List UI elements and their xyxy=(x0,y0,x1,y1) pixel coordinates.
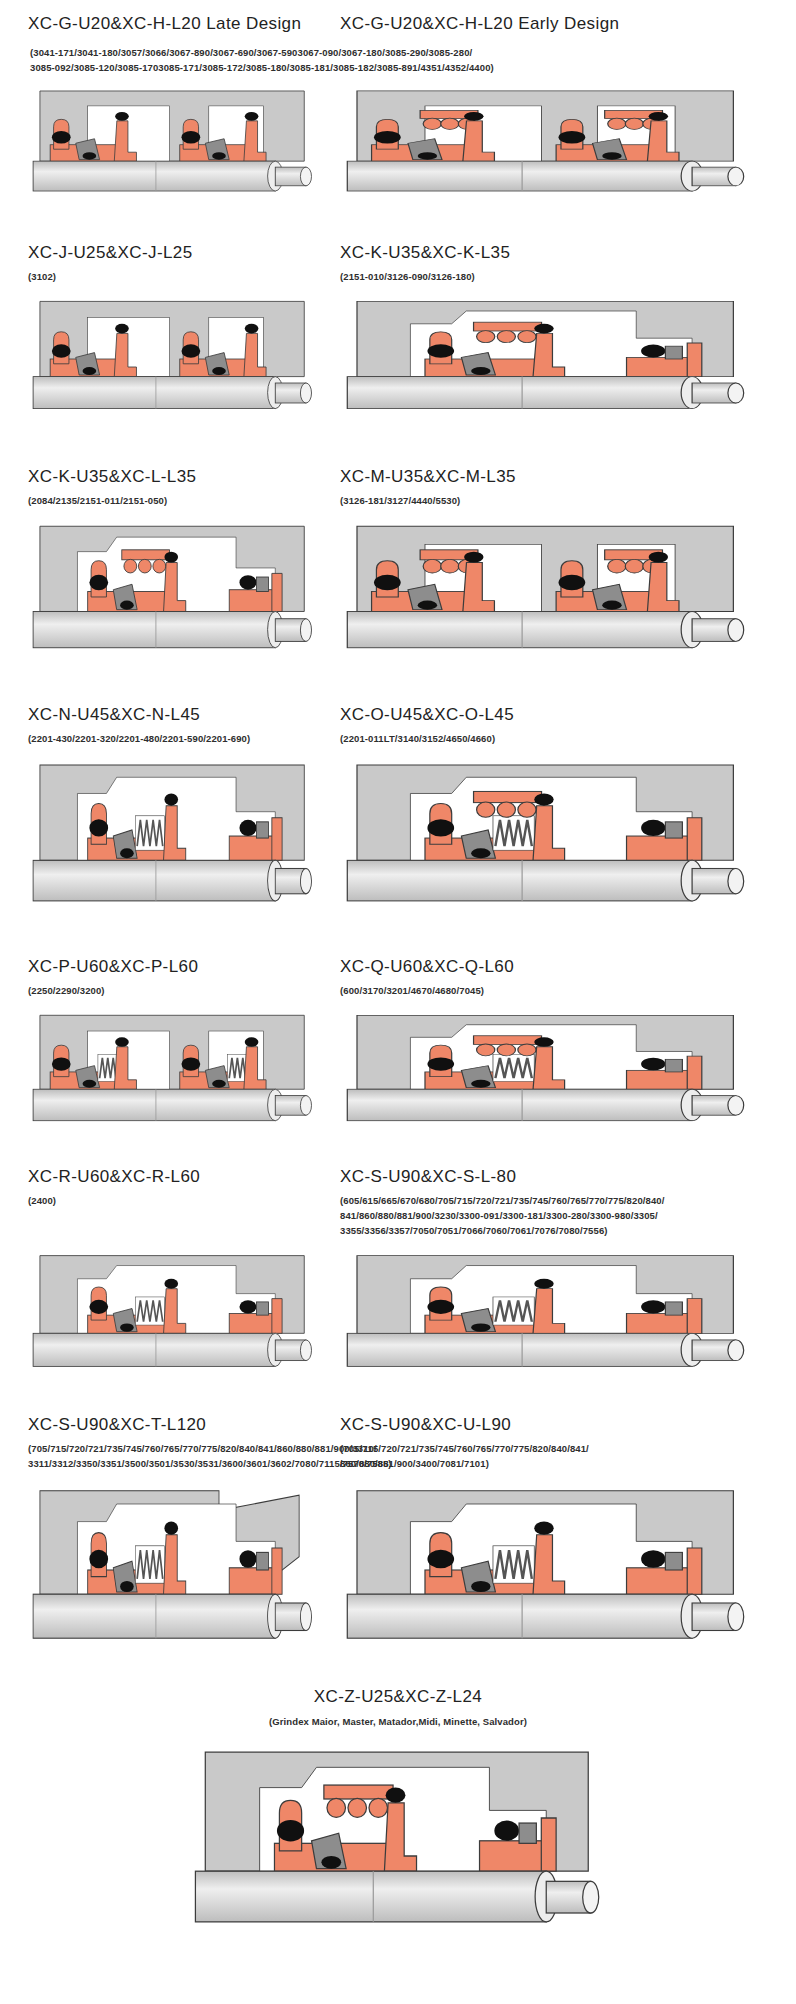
model-codes-line: (2201-011LT/3140/3152/4650/4660) xyxy=(340,732,770,747)
section-title-xc-t: XC-S-U90&XC-T-L120 xyxy=(28,1415,330,1435)
seal-diagram-xc-p xyxy=(28,1009,318,1127)
section-xc-q: XC-Q-U60&XC-Q-L60 (600/3170/3201/4670/46… xyxy=(338,957,796,1127)
seal-diagram-xc-u xyxy=(340,1482,753,1647)
section-title-xc-m: XC-M-U35&XC-M-L35 xyxy=(340,467,770,487)
section-xc-n: XC-N-U45&XC-N-L45 (2201-430/2201-320/220… xyxy=(0,705,338,909)
model-codes-xc-n: (2201-430/2201-320/2201-480/2201-590/220… xyxy=(28,732,330,747)
section-xc-m: XC-M-U35&XC-M-L35 (3126-181/3127/4440/55… xyxy=(338,467,796,655)
seal-diagram-xc-g-early xyxy=(340,85,753,197)
row-kl-m: XC-K-U35&XC-L-L35 (2084/2135/2151-011/21… xyxy=(0,467,796,655)
model-codes-line: (2151-010/3126-090/3126-180) xyxy=(340,270,770,285)
section-title-xc-s: XC-S-U90&XC-S-L-80 xyxy=(340,1167,770,1187)
seal-diagram-xc-s xyxy=(340,1249,753,1373)
model-codes-xc-j: (3102) xyxy=(28,270,330,285)
section-title-xc-p: XC-P-U60&XC-P-L60 xyxy=(28,957,330,977)
seal-diagram-xc-n xyxy=(28,757,318,909)
catalog-page: XC-G-U20&XC-H-L20 Late Design XC-G-U20&X… xyxy=(0,0,796,1956)
model-codes-xc-s: (605/615/665/670/680/705/715/720/721/735… xyxy=(340,1194,770,1239)
model-codes-line: (3041-171/3041-180/3057/3066/3067-890/30… xyxy=(30,46,796,61)
model-codes-line: (2084/2135/2151-011/2151-050) xyxy=(28,494,330,509)
model-codes-line: (705/715/720/721/735/745/760/765/770/775… xyxy=(340,1442,770,1457)
model-codes-line: (Grindex Maior, Master, Matador,Midi, Mi… xyxy=(163,1715,633,1730)
section-title-xc-q: XC-Q-U60&XC-Q-L60 xyxy=(340,957,770,977)
section-xc-g-early-title-cell: XC-G-U20&XC-H-L20 Early Design xyxy=(338,14,796,34)
seal-diagram-xc-g-late xyxy=(28,85,318,197)
row-g-diagrams xyxy=(0,75,796,197)
model-codes-xc-q: (600/3170/3201/4670/4680/7045) xyxy=(340,984,770,999)
model-codes-line: 841/860/880/881/900/3230/3300-091/3300-1… xyxy=(340,1209,770,1224)
model-codes-line: (605/615/665/670/680/705/715/720/721/735… xyxy=(340,1194,770,1209)
section-xc-k: XC-K-U35&XC-K-L35 (2151-010/3126-090/312… xyxy=(338,243,796,415)
section-title-xc-r: XC-R-U60&XC-R-L60 xyxy=(28,1167,330,1187)
seal-diagram-xc-kl xyxy=(28,519,318,655)
seal-diagram-xc-o xyxy=(340,757,753,909)
section-title-xc-n: XC-N-U45&XC-N-L45 xyxy=(28,705,330,725)
section-title-xc-z: XC-Z-U25&XC-Z-L24 xyxy=(163,1687,633,1707)
section-xc-g-late-title-cell: XC-G-U20&XC-H-L20 Late Design xyxy=(0,14,338,34)
seal-diagram-xc-m xyxy=(340,519,753,655)
section-title-xc-o: XC-O-U45&XC-O-L45 xyxy=(340,705,770,725)
section-title-xc-j: XC-J-U25&XC-J-L25 xyxy=(28,243,330,263)
shared-model-codes: (3041-171/3041-180/3057/3066/3067-890/30… xyxy=(0,46,796,75)
model-codes-line: (2250/2290/3200) xyxy=(28,984,330,999)
section-title-xc-g-late: XC-G-U20&XC-H-L20 Late Design xyxy=(28,14,330,34)
row-j-k: XC-J-U25&XC-J-L25 (3102) XC-K-U35&XC-K-L… xyxy=(0,243,796,415)
model-codes-line: (2400) xyxy=(28,1194,330,1209)
section-xc-t: XC-S-U90&XC-T-L120 (705/715/720/721/735/… xyxy=(0,1415,338,1647)
model-codes-xc-p: (2250/2290/3200) xyxy=(28,984,330,999)
model-codes-xc-r: (2400) xyxy=(28,1194,330,1239)
section-title-xc-k: XC-K-U35&XC-K-L35 xyxy=(340,243,770,263)
section-title-xc-u: XC-S-U90&XC-U-L90 xyxy=(340,1415,770,1435)
model-codes-line: (705/715/720/721/735/745/760/765/770/775… xyxy=(28,1442,330,1457)
seal-diagram-xc-z xyxy=(188,1742,608,1932)
section-xc-r: XC-R-U60&XC-R-L60 (2400) xyxy=(0,1167,338,1373)
section-xc-s: XC-S-U90&XC-S-L-80 (605/615/665/670/680/… xyxy=(338,1167,796,1373)
model-codes-line: 3085-092/3085-120/3085-1703085-171/3085-… xyxy=(30,61,796,76)
model-codes-xc-t: (705/715/720/721/735/745/760/765/770/775… xyxy=(28,1442,330,1472)
model-codes-xc-z: (Grindex Maior, Master, Matador,Midi, Mi… xyxy=(163,1715,633,1730)
seal-diagram-xc-q xyxy=(340,1009,753,1127)
section-xc-p: XC-P-U60&XC-P-L60 (2250/2290/3200) xyxy=(0,957,338,1127)
row-r-s: XC-R-U60&XC-R-L60 (2400) XC-S-U90&XC-S-L… xyxy=(0,1167,796,1373)
model-codes-xc-o: (2201-011LT/3140/3152/4650/4660) xyxy=(340,732,770,747)
model-codes-line: 3311/3312/3350/3351/3500/3501/3530/3531/… xyxy=(28,1457,330,1472)
row-n-o: XC-N-U45&XC-N-L45 (2201-430/2201-320/220… xyxy=(0,705,796,909)
section-xc-j: XC-J-U25&XC-J-L25 (3102) xyxy=(0,243,338,415)
seal-diagram-xc-t xyxy=(28,1482,318,1647)
model-codes-xc-u: (705/715/720/721/735/745/760/765/770/775… xyxy=(340,1442,770,1472)
model-codes-line: 3355/3356/3357/7050/7051/7066/7060/7061/… xyxy=(340,1224,770,1239)
model-codes-xc-kl: (2084/2135/2151-011/2151-050) xyxy=(28,494,330,509)
seal-diagram-xc-r xyxy=(28,1249,318,1373)
seal-diagram-xc-k xyxy=(340,295,753,415)
section-xc-o: XC-O-U45&XC-O-L45 (2201-011LT/3140/3152/… xyxy=(338,705,796,909)
row-g-designs: XC-G-U20&XC-H-L20 Late Design XC-G-U20&X… xyxy=(0,14,796,34)
section-xc-z: XC-Z-U25&XC-Z-L24 (Grindex Maior, Master… xyxy=(163,1687,633,1932)
model-codes-xc-m: (3126-181/3127/4440/5530) xyxy=(340,494,770,509)
model-codes-line: 860/880/881/900/3400/7081/7101) xyxy=(340,1457,770,1472)
section-xc-kl: XC-K-U35&XC-L-L35 (2084/2135/2151-011/21… xyxy=(0,467,338,655)
section-title-xc-g-early: XC-G-U20&XC-H-L20 Early Design xyxy=(340,14,770,34)
model-codes-line: (2201-430/2201-320/2201-480/2201-590/220… xyxy=(28,732,330,747)
model-codes-line: (600/3170/3201/4670/4680/7045) xyxy=(340,984,770,999)
seal-diagram-xc-j xyxy=(28,295,318,415)
section-xc-u: XC-S-U90&XC-U-L90 (705/715/720/721/735/7… xyxy=(338,1415,796,1647)
row-p-q: XC-P-U60&XC-P-L60 (2250/2290/3200) XC-Q-… xyxy=(0,957,796,1127)
model-codes-line: (3102) xyxy=(28,270,330,285)
section-title-xc-kl: XC-K-U35&XC-L-L35 xyxy=(28,467,330,487)
model-codes-line: (3126-181/3127/4440/5530) xyxy=(340,494,770,509)
row-t-u: XC-S-U90&XC-T-L120 (705/715/720/721/735/… xyxy=(0,1415,796,1647)
model-codes-xc-k: (2151-010/3126-090/3126-180) xyxy=(340,270,770,285)
